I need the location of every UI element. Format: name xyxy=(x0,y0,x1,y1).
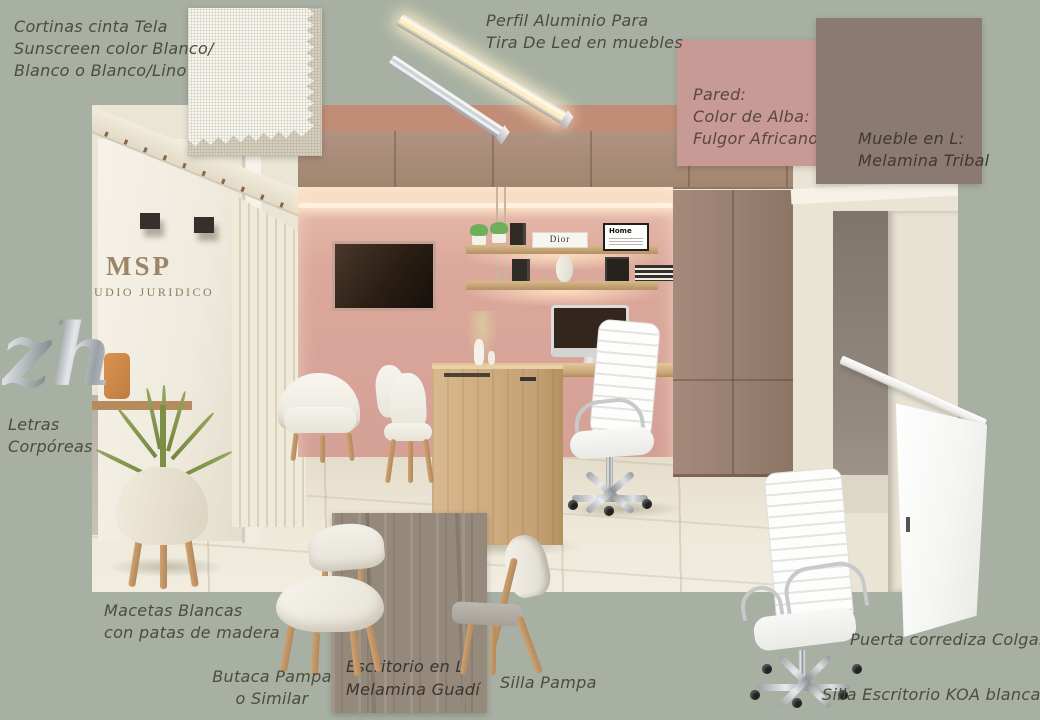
door-handle xyxy=(906,517,910,532)
shelf-books xyxy=(512,259,530,281)
chair-leg xyxy=(350,630,362,676)
annotation-line: Butaca Pampa xyxy=(200,666,344,688)
chair-leg xyxy=(516,616,543,675)
annotation-line: Blanco o Blanco/Lino xyxy=(14,60,214,82)
sliding-door-panel xyxy=(894,401,990,637)
render-signage-subtitle: UDIO JURIDICO xyxy=(94,285,214,300)
silla-koa-product-photo xyxy=(726,468,878,708)
wall-sconce-icon xyxy=(194,217,214,233)
chair-leg xyxy=(280,624,295,672)
annotation-macetas: Macetas Blancas con patas de madera xyxy=(104,600,280,644)
poster-title: Home xyxy=(609,227,632,235)
annotation-line: Macetas Blancas xyxy=(104,600,280,622)
annotation-line: Sunscreen color Blanco/ xyxy=(14,38,214,60)
corporeal-letters-zh: zh xyxy=(2,304,112,414)
shelf-books xyxy=(510,223,526,245)
shelf-plant xyxy=(470,224,488,236)
annotation-silla-pampa: Silla Pampa xyxy=(500,672,597,694)
label-line: Melamina Tribal xyxy=(858,150,982,172)
butaca-pampa-product-photo xyxy=(266,520,392,680)
annotation-line: Tira De Led en muebles xyxy=(486,32,683,54)
chair-leg xyxy=(320,435,325,463)
moodboard: MSP UDIO JURIDICO Dior Home xyxy=(0,0,1040,720)
shelf-plant-pot xyxy=(472,235,486,245)
led-strip-glow xyxy=(298,203,673,208)
melamine-swatch-label: Mueble en L: Melamina Tribal xyxy=(858,128,982,172)
melamine-swatch-tribal: Mueble en L: Melamina Tribal xyxy=(816,18,982,184)
chair-caster xyxy=(604,506,614,516)
wall-sconce-icon xyxy=(140,213,160,229)
annotation-line: Perfil Aluminio Para xyxy=(486,10,683,32)
render-tall-cabinet xyxy=(673,190,793,477)
planter-leg xyxy=(160,541,167,589)
annotation-line: Corpóreas xyxy=(8,436,93,458)
shelf-speaker xyxy=(605,257,629,281)
label-line: Melamina Guadí xyxy=(346,678,487,701)
paint-swatch-fulgor-africano: Pared: Color de Alba: Fulgor Africano xyxy=(677,40,839,166)
annotation-line: Letras xyxy=(8,414,93,436)
silla-pampa-product-photo xyxy=(452,535,560,677)
shelf-vase xyxy=(556,255,573,282)
shelf-book-stack xyxy=(635,265,677,281)
shelf-poster-home: Home xyxy=(603,223,649,251)
label-line: Mueble en L: xyxy=(858,128,982,150)
desk-vase-small xyxy=(488,351,495,365)
chair-caster xyxy=(762,664,772,674)
desk-notebook xyxy=(444,373,490,377)
floating-shelf xyxy=(466,281,658,290)
poster-text-lines xyxy=(609,238,643,246)
render-signage-title: MSP xyxy=(106,251,172,282)
plant-stem xyxy=(160,405,166,475)
tall-cabinet-seams xyxy=(673,190,793,474)
chair-caster xyxy=(792,698,802,708)
annotation-cortinas: Cortinas cinta Tela Sunscreen color Blan… xyxy=(14,16,214,82)
chair-leg xyxy=(365,620,383,672)
annotation-letras: Letras Corpóreas xyxy=(8,414,93,458)
annotation-line: o Similar xyxy=(200,688,344,710)
silla-seat xyxy=(451,601,522,627)
annotation-puerta: Puerta corrediza Colgante xyxy=(850,629,1040,651)
chair-caster xyxy=(642,499,652,509)
render-office-chair-seat xyxy=(569,426,655,460)
white-planter xyxy=(116,467,208,545)
butaca-seat xyxy=(276,576,384,632)
shelf-plant xyxy=(490,222,508,234)
annotation-butaca: Butaca Pampa o Similar xyxy=(200,666,344,710)
render-armchair-seat xyxy=(284,407,356,433)
chair-caster xyxy=(568,500,578,510)
chair-leg xyxy=(408,441,413,483)
annotation-line: Cortinas cinta Tela xyxy=(14,16,214,38)
render-tv xyxy=(332,241,436,311)
annotation-perfil: Perfil Aluminio Para Tira De Led en mueb… xyxy=(486,10,683,54)
chair-leg xyxy=(490,625,497,675)
butaca-back xyxy=(306,521,386,573)
annotation-silla-koa: Silla Escritorio KOA blanca xyxy=(822,684,1040,706)
desk-vase xyxy=(474,339,484,365)
shelf-book-dior: Dior xyxy=(532,232,588,248)
annotation-line: con patas de madera xyxy=(104,622,280,644)
chair-caster xyxy=(852,664,862,674)
vertical-blinds xyxy=(232,193,306,527)
chair-caster xyxy=(750,690,760,700)
shelf-led-glow xyxy=(466,290,658,306)
shelf-plant-pot xyxy=(492,233,506,243)
desk-phone xyxy=(520,377,536,381)
chair-leg xyxy=(460,623,474,675)
